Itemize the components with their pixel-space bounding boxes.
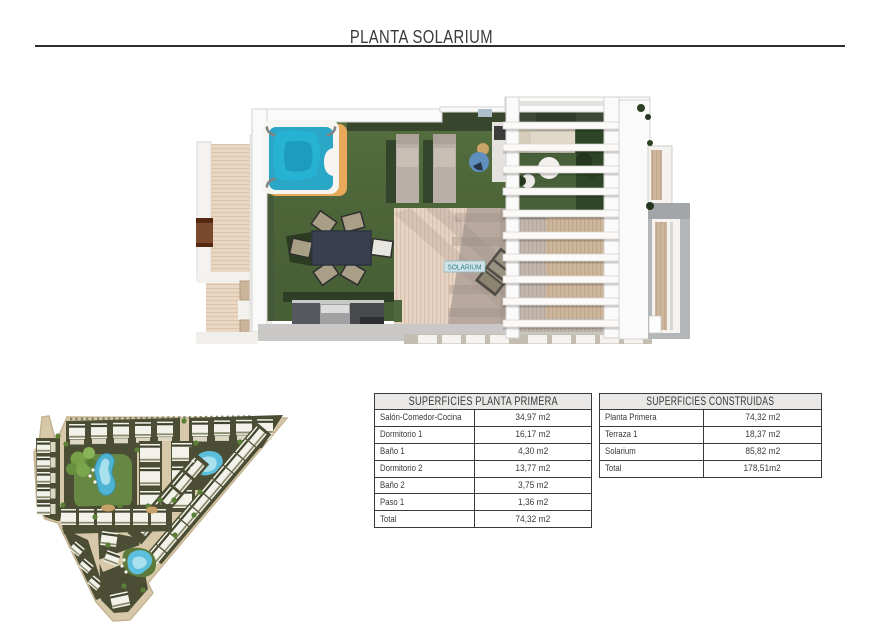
svg-text:SOLARIUM: SOLARIUM (448, 262, 482, 271)
